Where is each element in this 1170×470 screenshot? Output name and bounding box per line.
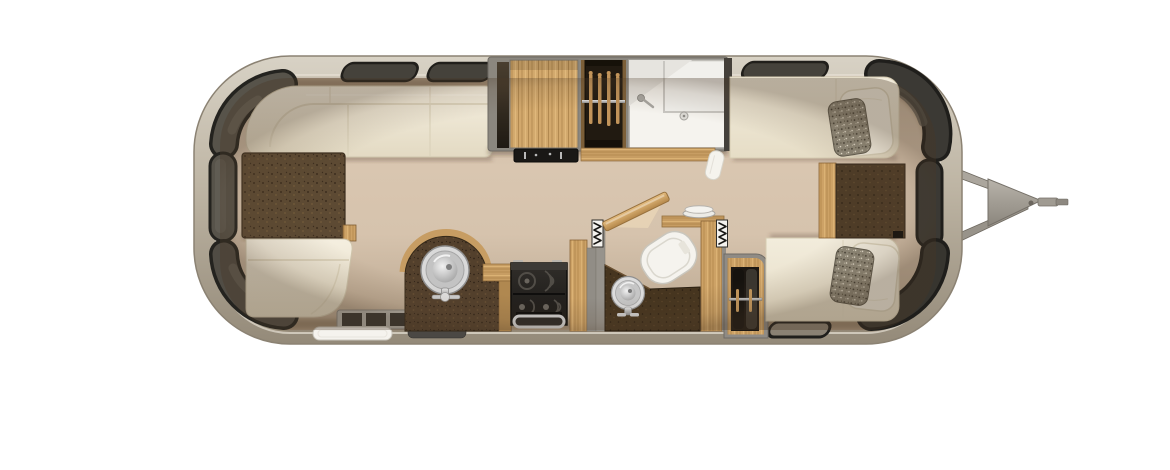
floor-vignette — [220, 78, 936, 330]
window-top-bedroom — [740, 62, 830, 79]
hitch-bolt — [1029, 201, 1034, 206]
floorplan-svg — [0, 0, 1170, 470]
pantry-top-shade — [510, 60, 578, 70]
floorplan-canvas — [0, 0, 1170, 470]
hitch-coupler-tip — [1056, 199, 1068, 205]
hitch-coupler — [1038, 198, 1058, 206]
hitch-assembly — [948, 165, 1068, 247]
